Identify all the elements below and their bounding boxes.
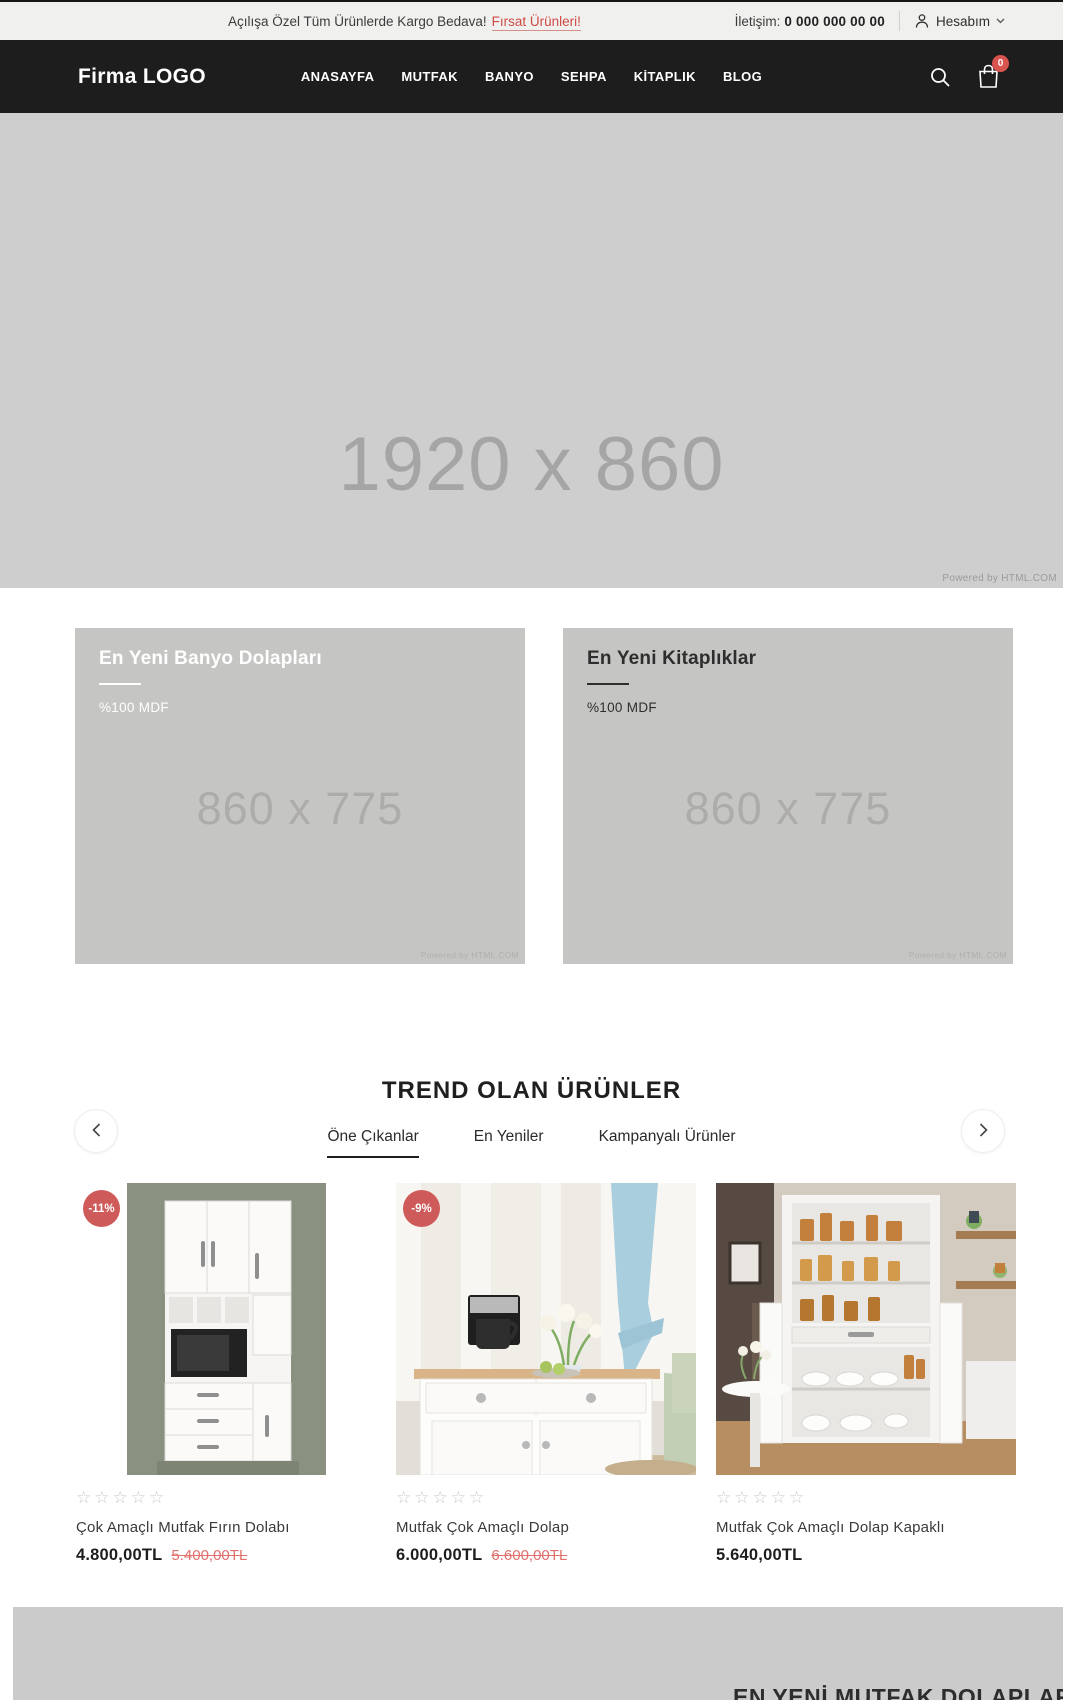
banner-content: En Yeni Kitaplıklar %100 MDF (587, 648, 756, 715)
current-price: 4.800,00TL (76, 1546, 162, 1565)
hero-watermark: Powered by HTML.COM (942, 573, 1057, 584)
current-price: 5.640,00TL (716, 1546, 802, 1565)
product-card: -9% (396, 1183, 696, 1565)
product-image-dolap-kapakli[interactable] (716, 1183, 1016, 1475)
carousel-prev-button[interactable] (74, 1109, 118, 1153)
contact-phone: 0 000 000 00 00 (784, 14, 885, 29)
banner-underline (587, 683, 629, 685)
tab-kampanyali-urunler[interactable]: Kampanyalı Ürünler (599, 1128, 736, 1158)
account-menu[interactable]: Hesabım (914, 13, 1005, 29)
banner-watermark: Powered by HTML.COM (421, 950, 519, 960)
product-name[interactable]: Çok Amaçlı Mutfak Fırın Dolabı (76, 1519, 376, 1536)
nav-item-blog[interactable]: BLOG (723, 69, 762, 84)
product-prices: 6.000,00TL 6.600,00TL (396, 1546, 696, 1565)
product-prices: 4.800,00TL 5.400,00TL (76, 1546, 376, 1565)
discount-badge: -9% (403, 1190, 440, 1227)
main-header: Firma LOGO ANASAYFA MUTFAK BANYO SEHPA K… (0, 40, 1063, 113)
page: Açılışa Özel Tüm Ürünlerde Kargo Bedava!… (0, 0, 1080, 1700)
current-price: 6.000,00TL (396, 1546, 482, 1565)
header-icons: 0 (929, 40, 1000, 113)
banner-banyo-dolaplari[interactable]: En Yeni Banyo Dolapları %100 MDF 860 x 7… (75, 628, 525, 964)
bottom-banner-mutfak-dolaplari[interactable]: EN YENİ MUTFAK DOLAPLARI (13, 1607, 1063, 1700)
old-price: 6.600,00TL (491, 1547, 567, 1564)
tab-one-cikanlar[interactable]: Öne Çıkanlar (327, 1128, 418, 1158)
product-prices: 5.640,00TL (716, 1546, 1016, 1565)
product-name[interactable]: Mutfak Çok Amaçlı Dolap (396, 1519, 696, 1536)
promo-text: Açılışa Özel Tüm Ürünlerde Kargo Bedava! (228, 14, 487, 29)
user-icon (914, 13, 930, 29)
topbar: Açılışa Özel Tüm Ürünlerde Kargo Bedava!… (0, 0, 1063, 40)
product-name[interactable]: Mutfak Çok Amaçlı Dolap Kapaklı (716, 1519, 1016, 1536)
product-card: ☆☆☆☆☆ Mutfak Çok Amaçlı Dolap Kapaklı 5.… (716, 1183, 1016, 1565)
rating-stars: ☆☆☆☆☆ (76, 1488, 376, 1508)
banner-content: En Yeni Banyo Dolapları %100 MDF (99, 648, 322, 715)
account-label: Hesabım (936, 14, 990, 29)
nav-item-anasayfa[interactable]: ANASAYFA (301, 69, 375, 84)
pantry-cabinet-illustration (716, 1183, 1016, 1475)
banner-title: En Yeni Kitaplıklar (587, 648, 756, 670)
nav-item-kitaplik[interactable]: KİTAPLIK (634, 69, 696, 84)
banner-watermark: Powered by HTML.COM (909, 950, 1007, 960)
contact-info[interactable]: İletişim:0 000 000 00 00 (735, 14, 885, 29)
chevron-right-icon (979, 1121, 988, 1142)
section-title-trending: TREND OLAN ÜRÜNLER (0, 1077, 1063, 1105)
banner-kitapliklar[interactable]: En Yeni Kitaplıklar %100 MDF 860 x 775 P… (563, 628, 1013, 964)
kitchen-cart-illustration (396, 1183, 696, 1475)
topbar-right: İletişim:0 000 000 00 00 Hesabım (735, 2, 1005, 40)
rating-stars: ☆☆☆☆☆ (396, 1488, 696, 1508)
product-image-cok-amacli-dolap[interactable] (396, 1183, 696, 1475)
old-price: 5.400,00TL (171, 1547, 247, 1564)
chevron-left-icon (92, 1121, 101, 1142)
banner-placeholder-text: 860 x 775 (563, 783, 1013, 835)
contact-label: İletişim: (735, 14, 781, 29)
cart-count-badge: 0 (992, 55, 1009, 72)
chevron-down-icon (996, 18, 1005, 24)
discount-badge: -11% (83, 1190, 120, 1227)
scrollbar[interactable] (1063, 0, 1080, 1700)
hero-slider: 1920 x 860 Powered by HTML.COM (0, 113, 1063, 588)
main-nav: ANASAYFA MUTFAK BANYO SEHPA KİTAPLIK BLO… (0, 40, 1063, 113)
cart-icon[interactable]: 0 (977, 64, 1000, 89)
tab-en-yeniler[interactable]: En Yeniler (474, 1128, 544, 1158)
hero-placeholder-text: 1920 x 860 (0, 421, 1063, 508)
product-card: -11% (76, 1183, 376, 1565)
product-image-firin-dolabi[interactable] (76, 1183, 376, 1475)
promo-link[interactable]: Fırsat Ürünleri! (492, 14, 581, 31)
banner-subtitle: %100 MDF (587, 700, 756, 715)
banner-placeholder-text: 860 x 775 (75, 783, 525, 835)
promo-banner: Açılışa Özel Tüm Ürünlerde Kargo Bedava!… (228, 14, 581, 29)
nav-item-mutfak[interactable]: MUTFAK (401, 69, 458, 84)
trending-tabs: Öne Çıkanlar En Yeniler Kampanyalı Ürünl… (0, 1128, 1063, 1158)
banner-title: En Yeni Banyo Dolapları (99, 648, 322, 670)
nav-item-banyo[interactable]: BANYO (485, 69, 534, 84)
carousel-next-button[interactable] (961, 1109, 1005, 1153)
bottom-section-title: EN YENİ MUTFAK DOLAPLARI (733, 1684, 1063, 1700)
product-carousel: -11% (76, 1183, 1016, 1565)
banner-underline (99, 683, 141, 685)
search-icon[interactable] (929, 66, 951, 88)
rating-stars: ☆☆☆☆☆ (716, 1488, 1016, 1508)
kitchen-oven-cabinet-illustration (127, 1183, 326, 1475)
nav-item-sehpa[interactable]: SEHPA (561, 69, 607, 84)
divider (899, 11, 900, 31)
banner-subtitle: %100 MDF (99, 700, 322, 715)
